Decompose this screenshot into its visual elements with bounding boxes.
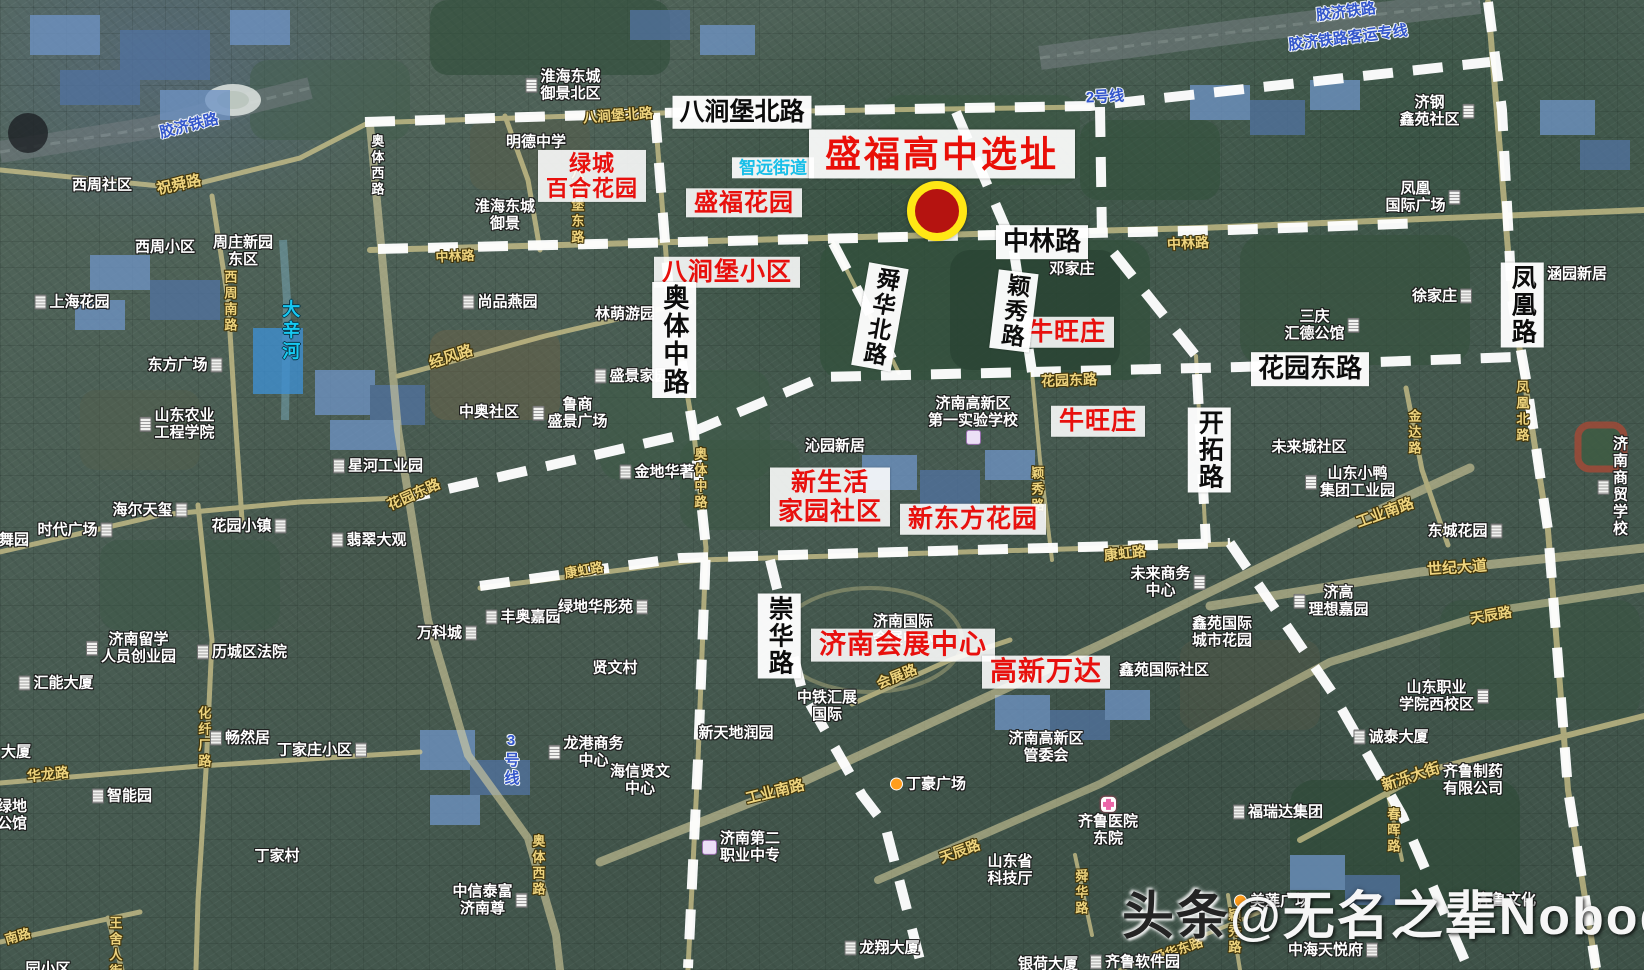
road-label: 康虹路 bbox=[1103, 544, 1146, 564]
label-text: 八涧堡北路 bbox=[583, 106, 654, 127]
place-label: 山东农业 工程学院 bbox=[139, 407, 214, 441]
building-icon bbox=[462, 295, 474, 310]
label-text: 会展路 bbox=[875, 662, 920, 693]
building-icon bbox=[594, 369, 606, 384]
road-label-major: 奥体中路 bbox=[652, 282, 696, 398]
place-label: 盛景家园 bbox=[594, 367, 669, 384]
building-icon bbox=[275, 519, 287, 534]
district-label: 新东方花园 bbox=[900, 504, 1046, 535]
place-label: 上海花园 bbox=[34, 293, 109, 310]
label-text: 舜华北路 bbox=[858, 265, 901, 368]
label-text: 盛福花园 bbox=[694, 189, 794, 216]
label-text: 祝舜路 bbox=[155, 172, 203, 198]
building-icon bbox=[176, 503, 188, 518]
district-label: 绿城 百合花园 bbox=[538, 150, 646, 202]
road-label: 天辰路 bbox=[938, 837, 983, 866]
label-text: 世纪大道 bbox=[1426, 557, 1487, 578]
road-label: 工业南路 bbox=[1354, 495, 1416, 532]
label-text: 颖秀路 bbox=[1029, 466, 1044, 514]
label-text: 新泺大街 bbox=[1380, 760, 1442, 795]
label-text: 新东方花园 bbox=[908, 505, 1038, 534]
place-label: 大厦 bbox=[1, 743, 31, 760]
building-icon bbox=[1449, 190, 1461, 205]
place-label: 新天地润园 bbox=[698, 724, 773, 741]
label-text: 鑫苑国际社区 bbox=[1119, 661, 1209, 678]
place-label: 中铁汇展 国际 bbox=[797, 689, 857, 723]
label-text: 胶济铁路 bbox=[1315, 0, 1377, 24]
road-label: 华龙路 bbox=[26, 765, 69, 785]
label-text: 八涧堡小区 bbox=[662, 258, 792, 287]
place-label: 山东职业 学院西校区 bbox=[1399, 679, 1489, 713]
label-text: 盛福高中选址 bbox=[825, 133, 1059, 174]
label-text: 尚品燕园 bbox=[477, 293, 537, 310]
building-icon bbox=[1598, 480, 1610, 495]
river-label: 大辛河 bbox=[280, 300, 301, 363]
place-label: 周庄新园 东区 bbox=[213, 234, 273, 268]
road-label-major: 开拓路 bbox=[1188, 408, 1231, 493]
label-text: 淮海东城 御景 bbox=[475, 198, 535, 232]
label-text: 奥体西路 bbox=[369, 134, 384, 198]
road-label: 舜华路 bbox=[1073, 869, 1088, 917]
road-label-major: 八涧堡北路 bbox=[672, 96, 811, 129]
label-text: 大厦 bbox=[1, 743, 31, 760]
place-label: 星河工业园 bbox=[333, 457, 423, 474]
place-label: 园小区 bbox=[25, 960, 70, 970]
label-text: 新生活 家园社区 bbox=[778, 469, 882, 526]
label-text: 中奥社区 bbox=[459, 403, 519, 420]
label-text: 山东小鸭 集团工业园 bbox=[1320, 465, 1395, 499]
transit-label: 2号线 bbox=[1085, 87, 1124, 106]
building-icon bbox=[101, 523, 113, 538]
building-icon bbox=[34, 295, 46, 310]
label-text: 园小区 bbox=[25, 960, 70, 970]
road-label-major: 花园东路 bbox=[1251, 352, 1369, 386]
road-label: 天辰路 bbox=[1469, 604, 1513, 627]
place-label: 中奥社区 bbox=[459, 403, 519, 420]
label-text: 新天地润园 bbox=[698, 724, 773, 741]
building-icon bbox=[525, 78, 537, 93]
building-icon bbox=[619, 465, 631, 480]
label-text: 福瑞达集团 bbox=[1248, 803, 1323, 820]
road-label-major: 中林路 bbox=[996, 225, 1088, 259]
building-icon bbox=[844, 941, 856, 956]
label-text: 奥体西路 bbox=[530, 834, 545, 898]
label-text: 舜华路 bbox=[1073, 869, 1088, 917]
place-label: 丁家村 bbox=[254, 847, 299, 864]
place-label: 花园小镇 bbox=[211, 517, 286, 534]
building-icon bbox=[485, 610, 497, 625]
label-text: 鑫苑国际 城市花园 bbox=[1192, 615, 1252, 649]
road-label: 王舍人街 bbox=[107, 916, 122, 970]
watermark-brand: 头条 bbox=[1122, 874, 1230, 949]
district-label: 济南会展中心 bbox=[811, 629, 995, 662]
building-icon bbox=[1090, 955, 1102, 970]
label-text: 2号线 bbox=[1085, 87, 1124, 106]
building-icon bbox=[465, 626, 477, 641]
building-icon bbox=[1233, 805, 1245, 820]
place-label: 万科城 bbox=[417, 624, 477, 641]
watermark: 头条@无名之辈Nobody bbox=[1122, 874, 1644, 949]
label-text: 汇能大厦 bbox=[33, 674, 93, 691]
label-text: 华龙路 bbox=[26, 765, 69, 785]
building-icon bbox=[210, 731, 222, 746]
label-text: 舞园 bbox=[0, 531, 29, 548]
label-text: 丁家庄小区 bbox=[277, 741, 352, 758]
building-icon bbox=[211, 358, 223, 373]
label-text: 济南高新区 第一实验学校 bbox=[928, 395, 1018, 429]
label-text: 贤文村 bbox=[592, 659, 637, 676]
site-title: 盛福高中选址 bbox=[809, 129, 1075, 178]
label-text: 化纤厂路 bbox=[196, 706, 211, 770]
building-icon bbox=[18, 676, 30, 691]
district-label: 新生活 家园社区 bbox=[770, 468, 890, 527]
label-text: 崇华路 bbox=[765, 596, 794, 677]
district-label: 八涧堡小区 bbox=[654, 257, 800, 288]
label-text: 牛旺庄 bbox=[1059, 407, 1137, 436]
label-text: 海尔天玺 bbox=[112, 501, 172, 518]
place-label: 济高 理想嘉园 bbox=[1293, 584, 1368, 618]
label-text: 翡翠大观 bbox=[346, 531, 406, 548]
label-text: 春晖路 bbox=[1385, 807, 1400, 855]
label-text: 高新万达 bbox=[990, 657, 1102, 688]
road-label-major: 舜华北路 bbox=[851, 262, 909, 371]
label-text: 万科城 bbox=[417, 624, 462, 641]
label-text: 康虹路 bbox=[564, 560, 605, 581]
place-label: 鲁商 盛景广场 bbox=[532, 396, 607, 430]
building-icon bbox=[1194, 575, 1206, 590]
label-text: 天辰路 bbox=[1469, 604, 1513, 627]
label-text: 花园小镇 bbox=[211, 517, 271, 534]
place-label: 丁豪广场 bbox=[890, 775, 966, 792]
building-icon bbox=[1463, 104, 1475, 119]
label-text: 西周小区 bbox=[135, 238, 195, 255]
label-text: 上海花园 bbox=[49, 293, 109, 310]
label-text: 涵园新居 bbox=[1547, 265, 1607, 282]
label-text: 诚泰大厦 bbox=[1368, 728, 1428, 745]
place-label: 东城花园 bbox=[1427, 522, 1502, 539]
label-text: 海信贤文 中心 bbox=[610, 763, 670, 797]
place-label: 海信贤文 中心 bbox=[610, 763, 670, 797]
label-text: 未来商务 中心 bbox=[1130, 565, 1190, 599]
place-label: 汇能大厦 bbox=[18, 674, 93, 691]
label-text: 林萌游园 bbox=[595, 305, 655, 322]
label-text: 八涧堡北路 bbox=[679, 98, 804, 127]
label-text: 奥体中路 bbox=[659, 284, 689, 396]
road-label: 康虹路 bbox=[564, 560, 605, 581]
label-text: 丰奥嘉园 bbox=[500, 608, 560, 625]
label-text: 工业南路 bbox=[744, 776, 806, 807]
road-label: 花园东路 bbox=[1041, 372, 1098, 390]
label-text: 中林路 bbox=[435, 249, 475, 266]
label-text: 工业南路 bbox=[1354, 495, 1416, 532]
road-label: 工业南路 bbox=[744, 776, 806, 807]
label-text: 中铁汇展 国际 bbox=[797, 689, 857, 723]
place-label: 福瑞达集团 bbox=[1233, 803, 1323, 820]
building-icon bbox=[197, 645, 209, 660]
place-label: 济南国际 会展中心 bbox=[873, 613, 933, 647]
place-label: 三庆 汇德公馆 bbox=[1284, 308, 1359, 342]
road-label: 祝舜路 bbox=[155, 172, 203, 198]
label-text: 鲁商 盛景广场 bbox=[547, 396, 607, 430]
label-text: 奥体中路 bbox=[692, 447, 707, 511]
label-text: 3号线 bbox=[502, 732, 519, 788]
building-icon bbox=[1353, 730, 1365, 745]
label-text: 星河工业园 bbox=[348, 457, 423, 474]
place-label: 绿地华彤苑 bbox=[558, 598, 648, 615]
road-label: 化纤厂路 bbox=[196, 706, 211, 770]
label-text: 凤凰北路 bbox=[1514, 380, 1529, 444]
label-text: 开拓路 bbox=[1195, 410, 1224, 491]
label-text: 济南会展中心 bbox=[819, 630, 987, 661]
label-text: 历城区法院 bbox=[212, 643, 287, 660]
road-label: 西周南路 bbox=[222, 270, 237, 334]
label-text: 花园东路 bbox=[1258, 354, 1362, 384]
label-text: 八涧堡东路 bbox=[569, 166, 584, 246]
place-label: 凤凰 国际广场 bbox=[1385, 180, 1460, 214]
label-text: 丁豪广场 bbox=[906, 775, 966, 792]
label-text: 绿地华彤苑 bbox=[558, 598, 633, 615]
road-label: 奥体西路 bbox=[530, 834, 545, 898]
label-text: 山东农业 工程学院 bbox=[154, 407, 214, 441]
label-text: 王舍人街 bbox=[107, 916, 122, 970]
label-text: 济南第二 职业中专 bbox=[720, 830, 780, 864]
place-label: 齐鲁软件园 bbox=[1090, 953, 1180, 970]
label-text: 三庆 汇德公馆 bbox=[1284, 308, 1344, 342]
place-label: 山东省 科技厅 bbox=[987, 853, 1032, 887]
road-label: 中林路 bbox=[1167, 235, 1210, 253]
place-label: 畅然居 bbox=[210, 729, 270, 746]
transit-label: 胶济铁路客运专线 bbox=[1287, 22, 1408, 54]
building-icon bbox=[92, 789, 104, 804]
place-label: 济南高新区 第一实验学校 bbox=[928, 395, 1018, 445]
place-label: 淮海东城 御景北区 bbox=[525, 68, 600, 102]
school-icon bbox=[702, 840, 717, 855]
building-icon bbox=[355, 743, 367, 758]
place-label: 丁家庄小区 bbox=[277, 741, 367, 758]
place-label: 尚品燕园 bbox=[462, 293, 537, 310]
label-text: 绿城 百合花园 bbox=[546, 151, 638, 201]
building-icon bbox=[1305, 475, 1317, 490]
place-label: 智能园 bbox=[92, 787, 152, 804]
label-text: 银荷大厦 bbox=[1018, 955, 1078, 970]
label-text: 东方广场 bbox=[147, 356, 207, 373]
label-text: 中信泰富 济南尊 bbox=[452, 883, 512, 917]
label-text: 西周社区 bbox=[72, 176, 132, 193]
place-label: 济南第二 职业中专 bbox=[702, 830, 780, 864]
label-text: 智远街道 bbox=[739, 158, 807, 177]
label-text: 明德中学 bbox=[506, 133, 566, 150]
district-label: 牛旺庄 bbox=[1051, 406, 1145, 437]
district-label: 盛福花园 bbox=[686, 188, 802, 217]
place-label: 涵园新居 bbox=[1547, 265, 1607, 282]
place-label: 历城区法院 bbox=[197, 643, 287, 660]
label-text: 胶济铁路 bbox=[158, 110, 220, 141]
transit-label: 3号线 bbox=[502, 732, 519, 788]
place-label: 丰奥嘉园 bbox=[485, 608, 560, 625]
road-label: 中林路 bbox=[435, 249, 475, 266]
label-text: 龙港商务 中心 bbox=[563, 735, 623, 769]
place-label: 徐家庄 bbox=[1412, 287, 1472, 304]
label-text: 凤凰路 bbox=[1508, 265, 1537, 346]
label-text: 济南留学 人员创业园 bbox=[101, 631, 176, 665]
label-text: 大辛河 bbox=[280, 300, 301, 363]
building-icon bbox=[548, 745, 560, 760]
place-label: 济南高新区 管委会 bbox=[1008, 730, 1083, 764]
road-label: 颖秀路 bbox=[1029, 466, 1044, 514]
place-label: 龙港商务 中心 bbox=[548, 735, 623, 769]
place-label: 林萌游园 bbox=[595, 305, 655, 322]
place-label: 海尔天玺 bbox=[112, 501, 187, 518]
road-label: 南路 bbox=[3, 926, 32, 947]
place-label: 中信泰富 济南尊 bbox=[452, 883, 527, 917]
label-text: 丁家村 bbox=[254, 847, 299, 864]
label-text: 济高 理想嘉园 bbox=[1308, 584, 1368, 618]
road-label-major: 崇华路 bbox=[758, 594, 801, 679]
place-label: 诚泰大厦 bbox=[1353, 728, 1428, 745]
label-text: 天辰路 bbox=[938, 837, 983, 866]
label-text: 中林路 bbox=[1167, 235, 1210, 253]
place-label: 齐鲁医院 东院 bbox=[1078, 797, 1138, 847]
place-label: 东方广场 bbox=[147, 356, 222, 373]
street-office-label: 智远街道 bbox=[732, 157, 814, 178]
place-label: 贤文村 bbox=[592, 659, 637, 676]
road-label: 花园东路 bbox=[385, 476, 443, 513]
label-text: 沁园新居 bbox=[805, 437, 865, 454]
label-text: 济南高新区 管委会 bbox=[1008, 730, 1083, 764]
road-label: 八涧堡东路 bbox=[569, 166, 584, 246]
place-label: 时代广场 bbox=[37, 521, 112, 538]
label-text: 济南商贸 学校 bbox=[1613, 436, 1629, 539]
label-text: 周庄新园 东区 bbox=[213, 234, 273, 268]
road-label: 世纪大道 bbox=[1426, 557, 1487, 578]
label-text: 凤凰 国际广场 bbox=[1385, 180, 1445, 214]
label-text: 胶济铁路客运专线 bbox=[1287, 22, 1408, 54]
place-label: 鑫苑国际 城市花园 bbox=[1192, 615, 1252, 649]
place-label: 齐鲁制药 有限公司 bbox=[1443, 763, 1503, 797]
building-icon bbox=[636, 600, 648, 615]
place-label: 邓家庄 bbox=[1049, 260, 1094, 277]
building-icon bbox=[333, 459, 345, 474]
place-label: 翡翠大观 bbox=[331, 531, 406, 548]
building-icon bbox=[1491, 524, 1503, 539]
label-text: 金地华著 bbox=[634, 463, 694, 480]
label-text: 邓家庄 bbox=[1049, 260, 1094, 277]
transit-label: 胶济铁路 bbox=[158, 110, 220, 141]
poi-dot-icon bbox=[890, 778, 903, 791]
district-label: 牛旺庄 bbox=[1020, 317, 1114, 348]
place-label: 明德中学 bbox=[506, 133, 566, 150]
label-text: 经风路 bbox=[427, 342, 475, 372]
hospital-cross-icon bbox=[1100, 797, 1115, 812]
label-text: 康虹路 bbox=[1103, 544, 1146, 564]
label-text: 金达路 bbox=[1406, 409, 1421, 457]
building-icon bbox=[516, 893, 528, 908]
label-text: 齐鲁软件园 bbox=[1105, 953, 1180, 970]
label-text: 未来城社区 bbox=[1271, 438, 1346, 455]
road-label: 奥体中路 bbox=[692, 447, 707, 511]
building-icon bbox=[532, 406, 544, 421]
label-text: 花园东路 bbox=[385, 476, 443, 513]
place-label: 未来城社区 bbox=[1271, 438, 1346, 455]
place-label: 淮海东城 御景 bbox=[475, 198, 535, 232]
place-label: 沁园新居 bbox=[805, 437, 865, 454]
building-icon bbox=[331, 533, 343, 548]
label-text: 盛景家园 bbox=[609, 367, 669, 384]
road-label: 经风路 bbox=[427, 342, 475, 372]
label-text: 济南国际 会展中心 bbox=[873, 613, 933, 647]
label-text: 牛旺庄 bbox=[1028, 318, 1106, 347]
place-label: 奥体西路 bbox=[369, 134, 384, 198]
place-label: 龙翔大厦 bbox=[844, 939, 919, 956]
label-text: 济钢 鑫苑社区 bbox=[1399, 94, 1459, 128]
place-label: 济南商贸 学校 bbox=[1598, 436, 1629, 539]
road-label: 金达路 bbox=[1406, 409, 1421, 457]
selected-site-marker bbox=[907, 181, 967, 241]
label-text: 齐鲁制药 有限公司 bbox=[1443, 763, 1503, 797]
watermark-handle: @无名之辈Nobody bbox=[1230, 874, 1644, 949]
place-label: 济南留学 人员创业园 bbox=[86, 631, 176, 665]
road-label: 会展路 bbox=[875, 662, 920, 693]
label-text: 东城花园 bbox=[1427, 522, 1487, 539]
place-label: 西周社区 bbox=[72, 176, 132, 193]
label-text: 徐家庄 bbox=[1412, 287, 1457, 304]
district-label: 高新万达 bbox=[982, 656, 1110, 689]
road-label: 八涧堡北路 bbox=[583, 106, 654, 127]
label-text: 绿地 公馆 bbox=[0, 798, 27, 832]
building-icon bbox=[86, 641, 98, 656]
label-text: 淮海东城 御景北区 bbox=[540, 68, 600, 102]
satellite-map-canvas[interactable]: 盛福高中选址绿城 百合花园盛福花园八涧堡小区牛旺庄牛旺庄新生活 家园社区新东方花… bbox=[0, 0, 1644, 970]
building-icon bbox=[1293, 594, 1305, 609]
place-label: 西周小区 bbox=[135, 238, 195, 255]
label-text: 颖秀路 bbox=[996, 272, 1031, 350]
label-text: 智能园 bbox=[107, 787, 152, 804]
label-text: 山东省 科技厅 bbox=[987, 853, 1032, 887]
label-text: 花园东路 bbox=[1041, 372, 1098, 390]
label-text: 龙翔大厦 bbox=[859, 939, 919, 956]
label-text: 山东职业 学院西校区 bbox=[1399, 679, 1474, 713]
place-label: 银荷大厦 bbox=[1018, 955, 1078, 970]
building-icon bbox=[1348, 318, 1360, 333]
label-text: 齐鲁医院 东院 bbox=[1078, 813, 1138, 847]
label-text: 畅然居 bbox=[225, 729, 270, 746]
label-text: 中林路 bbox=[1003, 227, 1081, 257]
map-labels-layer: 盛福高中选址绿城 百合花园盛福花园八涧堡小区牛旺庄牛旺庄新生活 家园社区新东方花… bbox=[0, 0, 1644, 970]
transit-label: 胶济铁路 bbox=[1315, 0, 1377, 24]
road-label: 春晖路 bbox=[1385, 807, 1400, 855]
place-label: 舞园 bbox=[0, 531, 29, 548]
road-label-major: 凤凰路 bbox=[1501, 263, 1544, 348]
place-label: 鑫苑国际社区 bbox=[1119, 661, 1209, 678]
road-label: 新泺大街 bbox=[1380, 760, 1442, 795]
building-icon bbox=[1477, 689, 1489, 704]
place-label: 金地华著 bbox=[619, 463, 694, 480]
label-text: 时代广场 bbox=[37, 521, 97, 538]
place-label: 山东小鸭 集团工业园 bbox=[1305, 465, 1395, 499]
road-label: 凤凰北路 bbox=[1514, 380, 1529, 444]
label-text: 西周南路 bbox=[222, 270, 237, 334]
building-icon bbox=[1460, 289, 1472, 304]
building-icon bbox=[139, 417, 151, 432]
place-label: 未来商务 中心 bbox=[1130, 565, 1205, 599]
place-label: 绿地 公馆 bbox=[0, 798, 27, 832]
school-icon bbox=[965, 430, 980, 445]
road-label-major: 颖秀路 bbox=[989, 269, 1039, 352]
place-label: 济钢 鑫苑社区 bbox=[1399, 94, 1474, 128]
label-text: 南路 bbox=[3, 926, 32, 947]
